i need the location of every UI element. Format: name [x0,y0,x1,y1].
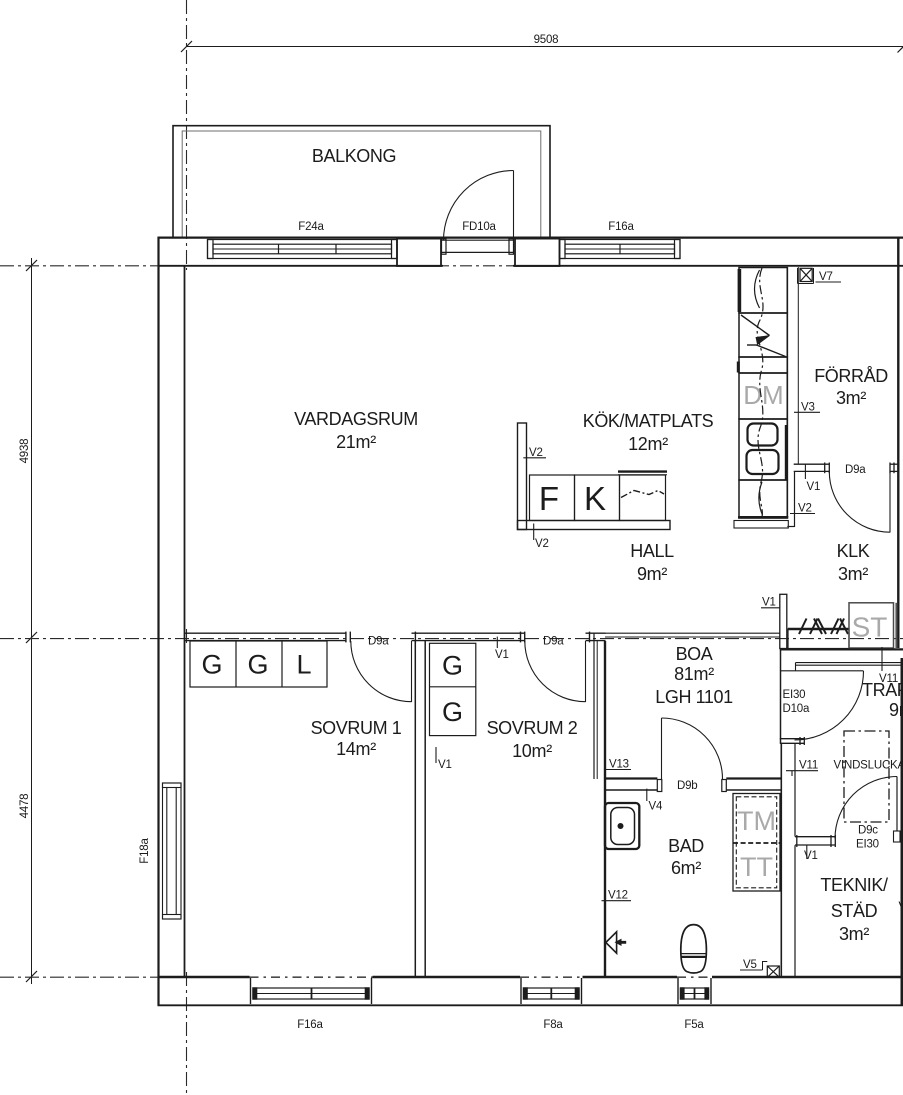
svg-text:V5: V5 [743,959,757,971]
svg-text:F16a: F16a [608,221,634,233]
svg-text:D9a: D9a [543,636,564,648]
svg-text:EI30: EI30 [856,839,879,851]
svg-text:K: K [584,480,606,517]
svg-text:TM: TM [737,806,776,836]
svg-text:KÖK/MATPLATS: KÖK/MATPLATS [583,411,714,431]
svg-text:VINDSLUCKA: VINDSLUCKA [834,760,903,772]
svg-text:3m²: 3m² [839,924,869,944]
svg-text:F18a: F18a [139,837,151,863]
svg-text:14m²: 14m² [336,739,376,759]
svg-text:V1: V1 [762,597,776,609]
svg-text:TT: TT [740,852,773,882]
svg-text:F24a: F24a [298,221,324,233]
svg-text:D9a: D9a [368,636,389,648]
svg-text:FD10a: FD10a [462,221,496,233]
svg-text:BAD: BAD [668,836,704,856]
svg-text:TEKNIK/: TEKNIK/ [820,875,888,895]
svg-text:10m²: 10m² [512,741,552,761]
svg-text:LGH 1101: LGH 1101 [655,687,733,707]
svg-text:SOVRUM 2: SOVRUM 2 [487,718,578,738]
svg-text:F5a: F5a [684,1019,704,1031]
svg-text:V9: V9 [899,901,903,913]
svg-text:4478: 4478 [19,794,31,819]
svg-text:4938: 4938 [19,439,31,464]
svg-text:F8a: F8a [543,1019,563,1031]
svg-text:STÄD: STÄD [831,901,878,921]
svg-text:9m²: 9m² [889,700,903,720]
svg-text:V11: V11 [879,673,898,685]
svg-text:9508: 9508 [534,34,559,46]
svg-text:V1: V1 [495,649,509,661]
svg-text:V4: V4 [649,801,663,813]
svg-text:V3: V3 [801,402,815,414]
svg-text:DM: DM [743,380,783,410]
svg-text:F16a: F16a [297,1019,323,1031]
svg-text:BALKONG: BALKONG [312,146,396,166]
svg-text:VARDAGSRUM: VARDAGSRUM [294,409,418,429]
svg-text:V11: V11 [799,760,818,772]
svg-text:ST: ST [852,612,888,643]
svg-text:F: F [539,480,559,517]
svg-text:21m²: 21m² [336,432,376,452]
svg-text:V7: V7 [819,271,833,283]
svg-text:V1: V1 [804,850,818,862]
svg-text:G: G [247,650,268,680]
svg-text:HALL: HALL [630,541,674,561]
svg-text:3m²: 3m² [838,564,868,584]
svg-text:G: G [442,651,463,681]
svg-text:12m²: 12m² [628,434,668,454]
svg-text:FÖRRÅD: FÖRRÅD [814,366,888,386]
svg-text:G: G [442,697,463,727]
svg-text:D9c: D9c [858,825,878,837]
svg-text:G: G [201,650,222,680]
svg-text:L: L [296,650,311,680]
svg-text:V2: V2 [798,503,812,515]
svg-text:6m²: 6m² [671,858,701,878]
svg-text:V1: V1 [807,481,821,493]
svg-text:D9a: D9a [845,464,866,476]
svg-text:81m²: 81m² [674,664,714,684]
svg-text:V12: V12 [608,890,628,902]
svg-text:V2: V2 [535,538,549,550]
svg-text:KLK: KLK [837,541,870,561]
svg-text:V1: V1 [438,759,452,771]
svg-text:D10a: D10a [783,703,810,715]
svg-text:3m²: 3m² [836,388,866,408]
svg-text:V2: V2 [529,447,543,459]
svg-text:BOA: BOA [676,644,713,664]
svg-text:9m²: 9m² [637,564,667,584]
svg-text:D9b: D9b [677,780,698,792]
svg-text:SOVRUM 1: SOVRUM 1 [311,718,402,738]
svg-text:EI30: EI30 [783,689,806,701]
svg-text:V13: V13 [609,759,629,771]
